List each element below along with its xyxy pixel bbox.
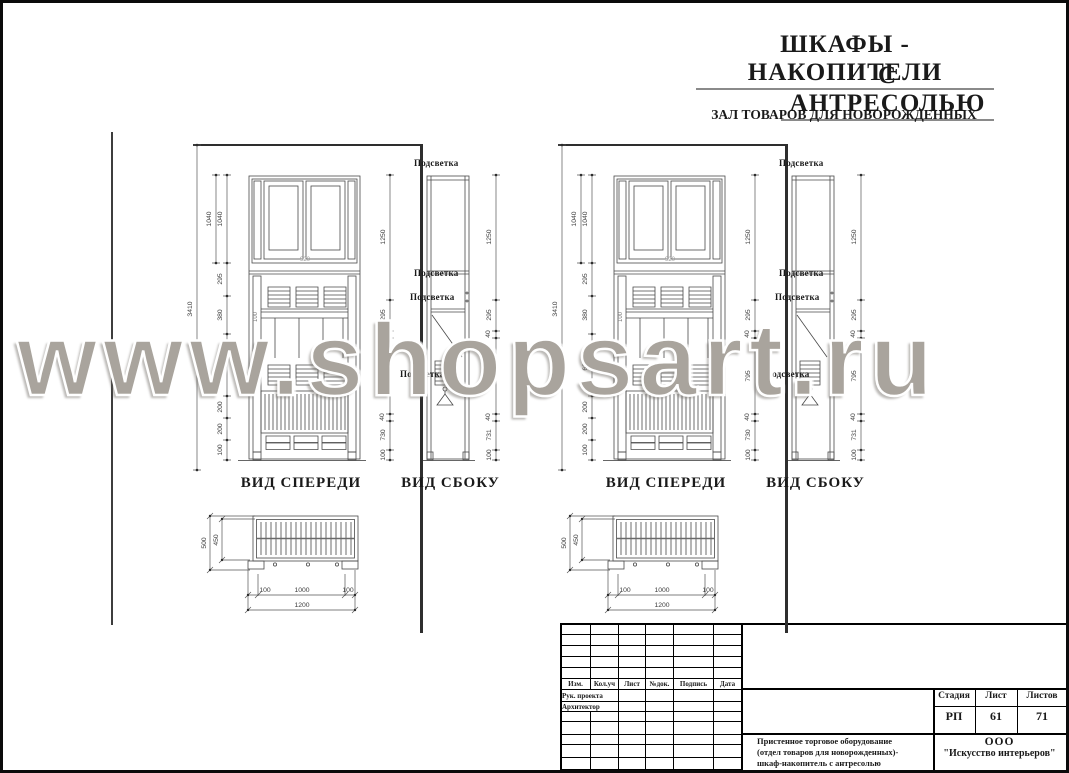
dim-plan-100r: 100: [702, 587, 714, 594]
dim-side-3: 795: [745, 370, 752, 382]
dim-side-0: 1250: [745, 229, 752, 244]
stage-value: РП: [933, 709, 975, 731]
revision-table: Изм. Кол.уч Лист №док. Подпись Дата Рук.…: [560, 623, 742, 770]
watermark-text: www.shopsart.ru: [17, 308, 1062, 411]
dim-side-6: 100: [380, 449, 387, 461]
dim-sideout-2: 40: [850, 330, 857, 338]
col-list: Лист: [619, 679, 646, 690]
dim-side-5: 730: [380, 429, 387, 441]
dim-front-0: 1040: [217, 211, 224, 226]
dim-front-1: 295: [217, 273, 224, 285]
dim-sideout-6: 100: [851, 449, 858, 461]
dim-plan-100l: 100: [619, 587, 631, 594]
dim-plan-500: 500: [201, 537, 208, 549]
dim-front-2: 380: [582, 309, 589, 321]
dim-total-height: 3410: [552, 301, 559, 316]
col-izm: Изм.: [561, 679, 591, 690]
drawing-sheet: ШКАФЫ - НАКОПИТЕЛИ С АНТРЕСОЛЬЮ ЗАЛ ТОВА…: [0, 0, 1069, 773]
side-view-drawing: [426, 175, 470, 461]
front-view-drawing: [248, 175, 361, 461]
dim-shelf-depth: 100: [618, 312, 624, 322]
dim-front-3: 625: [582, 359, 589, 371]
dim-side-5: 730: [745, 429, 752, 441]
dim-side-2: 40: [379, 330, 386, 338]
front-view-drawing: [613, 175, 726, 461]
col-dok: №док.: [646, 679, 674, 690]
dim-plan-1200: 1200: [294, 602, 309, 609]
plan-view-2: 500 450 100 1000 100 1200: [558, 508, 748, 623]
dim-plan-100l: 100: [259, 587, 271, 594]
dim-antresol-height: 1040: [571, 211, 578, 226]
dim-front-5: 200: [217, 423, 224, 435]
wall-line: [785, 144, 788, 633]
stamp-divider-6: [933, 706, 1066, 707]
stage-label: Стадия: [933, 691, 975, 705]
title-block: Изм. Кол.уч Лист №док. Подпись Дата Рук.…: [560, 623, 1066, 770]
wall-line: [420, 144, 423, 633]
light-label-4: Подсветка: [765, 369, 809, 379]
dim-sideout-5: 731: [486, 429, 493, 441]
light-label-1: Подсветка: [414, 158, 458, 168]
dim-plan-1200: 1200: [654, 602, 669, 609]
company-name-line2: "Искусство интерьеров": [935, 748, 1064, 759]
dim-plan-1000: 1000: [294, 587, 309, 594]
light-label-4: Подсветка: [400, 369, 444, 379]
dim-sideout-2: 40: [485, 330, 492, 338]
dim-sideout-3: 795: [851, 370, 858, 382]
col-data: Дата: [714, 679, 742, 690]
dim-chain-front: 1040 295 380 625 200 200 100: [583, 144, 597, 476]
dim-sideout-4: 40: [485, 413, 492, 421]
dim-sideout-4: 40: [850, 413, 857, 421]
dim-plan-450: 450: [573, 534, 580, 546]
dim-side-6: 100: [745, 449, 752, 461]
stamp-divider-7: [741, 733, 1066, 735]
sheet-label: Лист: [975, 691, 1017, 705]
dim-total-height: 3410: [187, 301, 194, 316]
dim-front-0: 1040: [582, 211, 589, 226]
dim-door-width: 920: [657, 257, 683, 263]
role-arhitektor: Архитектор: [561, 702, 619, 712]
side-view-label: ВИД СБОКУ: [753, 475, 878, 492]
dim-plan-100r: 100: [342, 587, 354, 594]
dim-side-1: 295: [380, 309, 387, 321]
dim-plan-500: 500: [561, 537, 568, 549]
side-view-label: ВИД СБОКУ: [388, 475, 513, 492]
dim-front-4: 200: [582, 401, 589, 413]
dim-front-1: 295: [582, 273, 589, 285]
company-name-line1: ООО: [935, 736, 1064, 748]
light-label-1: Подсветка: [779, 158, 823, 168]
dim-side-2: 40: [744, 330, 751, 338]
dim-plan-450: 450: [213, 534, 220, 546]
front-view-label: ВИД СПЕРЕДИ: [226, 475, 376, 492]
dim-chain-front: 1040 295 380 625 200 200 100: [218, 144, 232, 476]
dim-sideout-1: 295: [486, 309, 493, 321]
dim-sideout-3: 795: [486, 370, 493, 382]
sheet-value: 61: [975, 709, 1017, 731]
front-view-label: ВИД СПЕРЕДИ: [591, 475, 741, 492]
dim-plan-1000: 1000: [654, 587, 669, 594]
dim-chain-total: 3410: [553, 144, 569, 476]
company-block: ООО "Искусство интерьеров": [935, 736, 1064, 759]
dim-chain-side-inner: 1250 295 40 795 40 730 100: [381, 144, 395, 476]
dim-side-4: 40: [744, 413, 751, 421]
dim-shelf-depth: 100: [253, 312, 259, 322]
light-label-2: Подсветка: [779, 268, 823, 278]
dim-side-1: 295: [745, 309, 752, 321]
side-view-drawing: [791, 175, 835, 461]
dim-chain-side-outer: 1250 295 40 795 40 731 100: [852, 144, 866, 476]
left-frame-line: [111, 132, 113, 625]
light-label-3: Подсветка: [410, 292, 454, 302]
plan-view-1: 500 450 100 1000 100 1200: [198, 508, 388, 623]
dim-antresol-height: 1040: [206, 211, 213, 226]
dim-side-3: 795: [380, 370, 387, 382]
dim-sideout-0: 1250: [851, 229, 858, 244]
page-subtitle: ЗАЛ ТОВАРОВ ДЛЯ НОВОРОЖДЕННЫХ: [705, 107, 983, 123]
drawing-description: Пристенное торговое оборудование (отдел …: [757, 736, 932, 769]
dim-front-5: 200: [582, 423, 589, 435]
description-line-1: Пристенное торговое оборудование: [757, 736, 932, 747]
dim-front-6: 100: [217, 444, 224, 456]
dim-front-6: 100: [582, 444, 589, 456]
sheets-label: Листов: [1017, 691, 1067, 705]
col-koluch: Кол.уч: [591, 679, 619, 690]
dim-front-3: 625: [217, 359, 224, 371]
col-podpis: Подпись: [674, 679, 714, 690]
dim-door-width: 920: [292, 257, 318, 263]
role-ruk-proekta: Рук. проекта: [561, 690, 619, 702]
dim-side-0: 1250: [380, 229, 387, 244]
dim-sideout-0: 1250: [486, 229, 493, 244]
dim-sideout-5: 731: [851, 429, 858, 441]
dim-side-4: 40: [379, 413, 386, 421]
dim-sideout-6: 100: [486, 449, 493, 461]
description-line-2: (отдел товаров для новорожденных)-: [757, 747, 932, 758]
light-label-2: Подсветка: [414, 268, 458, 278]
dim-chain-side-inner: 1250 295 40 795 40 730 100: [746, 144, 760, 476]
dim-front-2: 380: [217, 309, 224, 321]
plan-rack-drawing: 500 450 100 1000 100 1200: [558, 508, 748, 623]
dim-chain-total: 3410: [188, 144, 204, 476]
description-line-3: шкаф-накопитель с антресолью: [757, 758, 932, 769]
dim-sideout-1: 295: [851, 309, 858, 321]
plan-rack-drawing: 500 450 100 1000 100 1200: [198, 508, 388, 623]
dim-chain-side-outer: 1250 295 40 795 40 731 100: [487, 144, 501, 476]
stamp-divider-1: [741, 623, 743, 770]
sheets-value: 71: [1017, 709, 1067, 731]
dim-front-4: 200: [217, 401, 224, 413]
light-label-3: Подсветка: [775, 292, 819, 302]
